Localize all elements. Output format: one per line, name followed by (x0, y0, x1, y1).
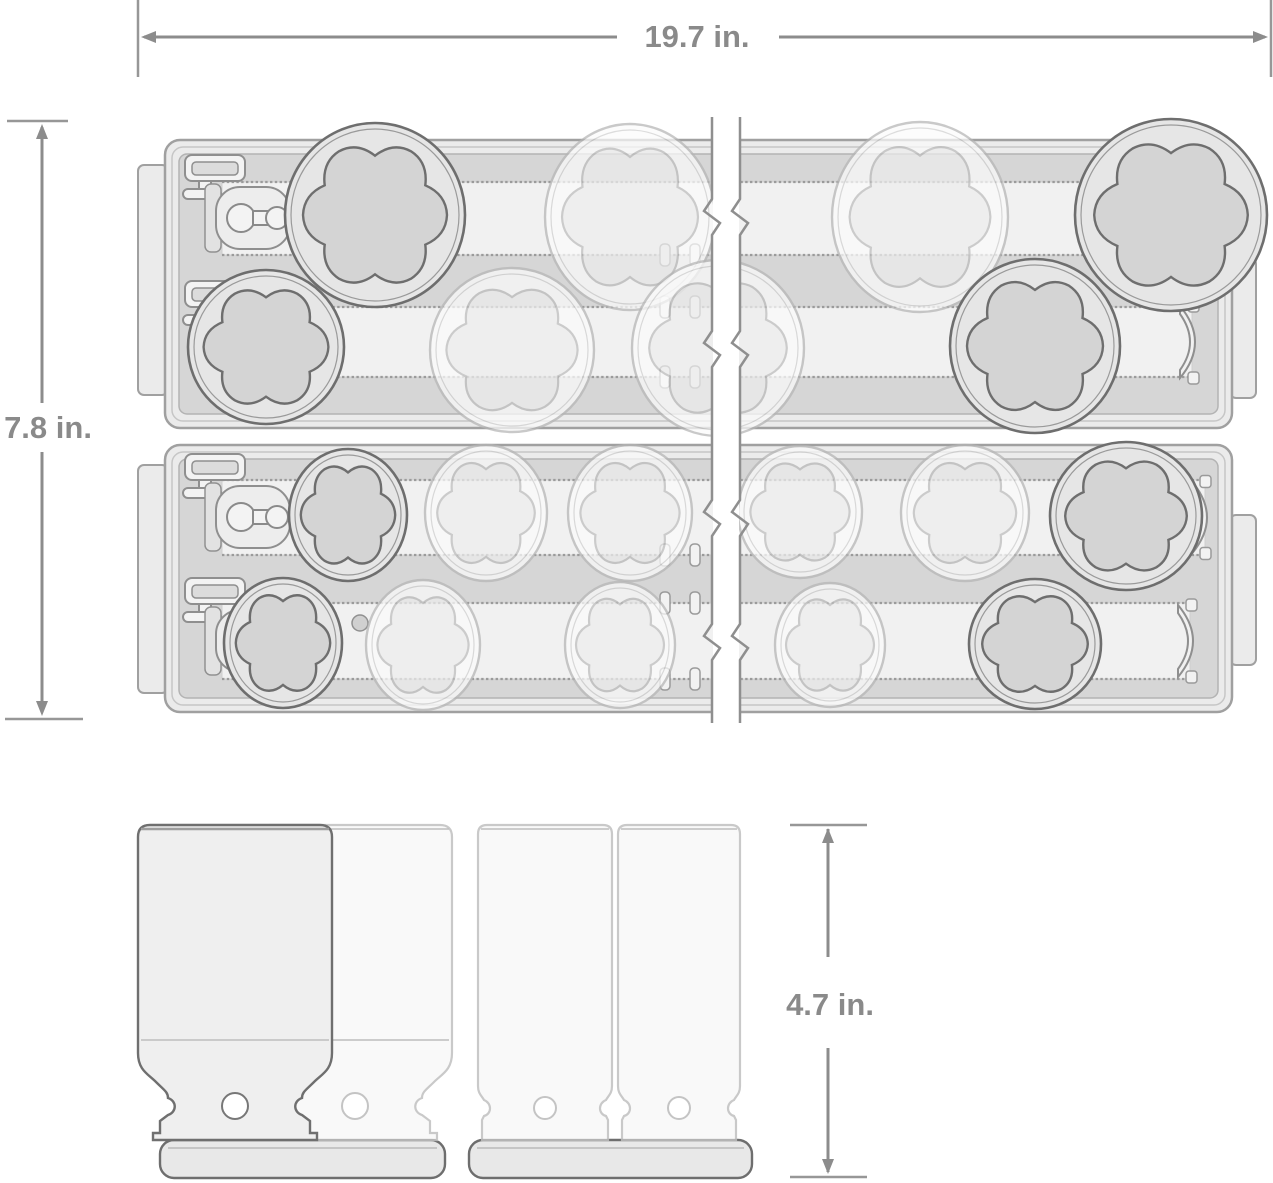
top-width-dimension: 19.7 in. (138, 0, 1271, 77)
socket-top-view-solid (285, 123, 465, 307)
rail-clip-slot (690, 592, 700, 614)
socket-side-view-group (138, 825, 752, 1178)
arrowhead-up-icon (822, 828, 834, 843)
socket-height-dimension-label: 4.7 in. (786, 987, 874, 1022)
socket-top-view-solid (289, 449, 407, 581)
socket-top-view-solid (1075, 119, 1267, 311)
socket-top-view-ghost (430, 268, 594, 432)
socket-top-view-ghost (901, 445, 1029, 581)
arrowhead-left-icon (141, 31, 156, 43)
socket-top-view-solid (969, 579, 1101, 709)
socket-base-side-view (469, 1140, 752, 1178)
drive-pin-hole (534, 1097, 556, 1119)
arrowhead-down-icon (822, 1159, 834, 1174)
drive-pin-hole (342, 1093, 368, 1119)
tray-illustrations (138, 112, 1267, 1178)
socket-top-view-ghost (366, 580, 480, 710)
detent-pin (352, 615, 368, 631)
socket-side-view-ghost (618, 825, 740, 1140)
width-dimension-label: 19.7 in. (644, 19, 749, 54)
diagram-canvas: 19.7 in. 7.8 in. 4.7 in. (0, 0, 1273, 1183)
socket-top-view-ghost (775, 583, 885, 707)
socket-top-view-ghost (738, 446, 862, 578)
socket-side-view-ghost (478, 825, 612, 1140)
socket-top-view-ghost (425, 445, 547, 581)
arrowhead-down-icon (36, 701, 48, 716)
drive-pin-hole (668, 1097, 690, 1119)
socket-top-view-solid (188, 270, 344, 424)
socket-top-view-solid (1050, 442, 1202, 590)
arrowhead-up-icon (36, 124, 48, 139)
socket-top-view-solid (950, 259, 1120, 433)
height-dimension-label: 7.8 in. (4, 410, 92, 445)
rail-clip-slot (690, 668, 700, 690)
tray-top-top-view (138, 119, 1267, 436)
tray-bottom-top-view (138, 442, 1256, 712)
socket-side-view-solid (138, 825, 332, 1140)
socket-top-view-solid (224, 578, 342, 708)
arrowhead-right-icon (1253, 31, 1268, 43)
socket-top-view-ghost (565, 582, 675, 708)
socket-set-dimension-diagram: 19.7 in. 7.8 in. 4.7 in. (0, 0, 1273, 1183)
socket-height-dimension: 4.7 in. (786, 825, 874, 1177)
drive-pin-hole (222, 1093, 248, 1119)
left-height-dimension: 7.8 in. (4, 121, 92, 719)
rail-clip-slot (690, 544, 700, 566)
socket-top-view-ghost (568, 445, 692, 581)
socket-base-side-view (160, 1140, 445, 1178)
